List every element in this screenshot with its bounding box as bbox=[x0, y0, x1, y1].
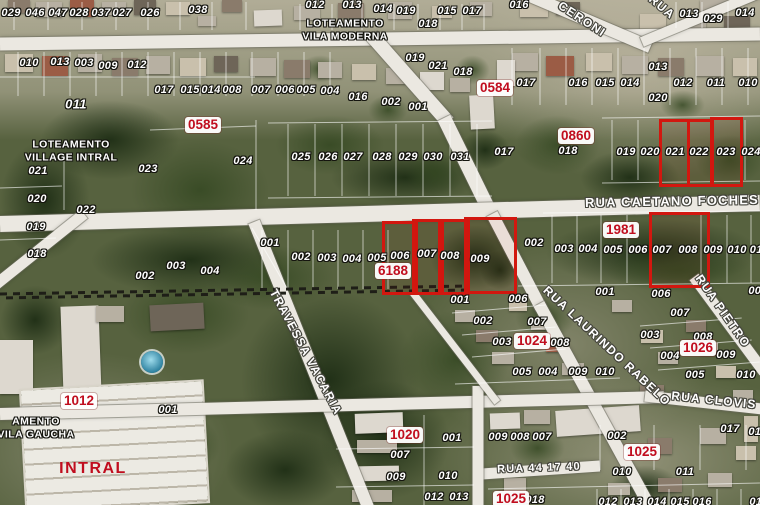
lot-number-label: 006 bbox=[390, 250, 409, 262]
lot-number-label: 013 bbox=[679, 8, 698, 20]
lot-number-label: 016 bbox=[692, 496, 711, 505]
block-id-label: 1012 bbox=[61, 393, 97, 409]
lot-number-label: 012 bbox=[673, 77, 692, 89]
building bbox=[250, 58, 276, 76]
parcel-boundary-line bbox=[717, 489, 718, 505]
lot-number-label: 024 bbox=[741, 146, 760, 158]
lot-number-label: 002 bbox=[381, 96, 400, 108]
parcel-boundary-line bbox=[394, 4, 395, 30]
lot-number-label: 006 bbox=[628, 244, 647, 256]
lot-number-label: 021 bbox=[428, 60, 447, 72]
lot-number-label: 023 bbox=[716, 146, 735, 158]
lot-number-label: 007 bbox=[390, 449, 409, 461]
building bbox=[512, 53, 538, 71]
lot-number-label: 018 bbox=[558, 145, 577, 157]
lot-number-label: 010 bbox=[612, 466, 631, 478]
lot-number-label: 013 bbox=[648, 61, 667, 73]
lot-number-label: 008 bbox=[678, 244, 697, 256]
parcel-boundary-line bbox=[540, 48, 541, 105]
lot-number-label: 007 bbox=[251, 84, 270, 96]
lot-number-label: 005 bbox=[512, 366, 531, 378]
parcel-boundary-line bbox=[552, 215, 553, 283]
parcel-boundary-line bbox=[566, 48, 567, 105]
subdivision-name-label: LOTEAMENTO VILA MODERNA bbox=[302, 17, 388, 42]
lot-number-label: 026 bbox=[318, 151, 337, 163]
lot-number-label: 003 bbox=[166, 260, 185, 272]
lot-number-label: 011 bbox=[750, 244, 760, 256]
block-id-label: 1025 bbox=[624, 444, 660, 460]
lot-number-label: 002 bbox=[291, 251, 310, 263]
parcel-boundary-line bbox=[577, 215, 578, 283]
lot-number-label: 022 bbox=[76, 204, 95, 216]
lot-number-label: 029 bbox=[1, 7, 20, 19]
parcel-boundary-line bbox=[696, 48, 697, 105]
block-id-label: 1024 bbox=[514, 333, 550, 349]
lot-number-label: 030 bbox=[423, 151, 442, 163]
lot-number-label: 002 bbox=[524, 237, 543, 249]
parcel-boundary-line bbox=[746, 425, 747, 470]
lot-number-label: 017 bbox=[154, 84, 173, 96]
parcel-boundary-line bbox=[484, 4, 485, 30]
lot-number-label: 007 bbox=[417, 248, 436, 260]
lot-number-label: 002 bbox=[135, 270, 154, 282]
lot-number-label: 019 bbox=[405, 52, 424, 64]
swimming-pool bbox=[141, 351, 163, 373]
parcel-boundary-line bbox=[612, 120, 613, 180]
parcel-boundary-line bbox=[592, 48, 593, 105]
parcel-boundary-line bbox=[212, 2, 213, 30]
building bbox=[708, 473, 732, 487]
lot-number-label: 004 bbox=[342, 253, 361, 265]
lot-number-label: 028 bbox=[372, 151, 391, 163]
lot-number-label: 009 bbox=[568, 366, 587, 378]
lot-number-label: 003 bbox=[317, 252, 336, 264]
building bbox=[284, 60, 310, 78]
building bbox=[146, 56, 170, 74]
building bbox=[96, 306, 124, 322]
lot-number-label: 014 bbox=[647, 496, 666, 505]
lot-number-label: 026 bbox=[140, 7, 159, 19]
parcel-boundary-line bbox=[338, 230, 339, 289]
parcel-boundary-line bbox=[122, 52, 123, 96]
parcel-boundary-line bbox=[256, 120, 257, 210]
building bbox=[612, 300, 632, 312]
lot-number-label: 019 bbox=[26, 221, 45, 233]
parcel-boundary-line bbox=[702, 2, 703, 28]
block-id-label: 1026 bbox=[680, 340, 716, 356]
parcel-boundary-line bbox=[64, 156, 65, 210]
lot-number-label: 027 bbox=[343, 151, 362, 163]
lot-number-label: 020 bbox=[648, 92, 667, 104]
parcel-boundary-line bbox=[512, 48, 513, 105]
street-name-label: RUA CAETANO FOCHES bbox=[585, 192, 759, 210]
lot-number-label: 009 bbox=[703, 244, 722, 256]
parcel-boundary-line bbox=[597, 489, 598, 505]
parcel-boundary-line bbox=[600, 425, 601, 470]
lot-number-label: 027 bbox=[112, 7, 131, 19]
lot-number-label: 029 bbox=[703, 13, 722, 25]
lot-number-label: 015 bbox=[180, 84, 199, 96]
block-id-label: 6188 bbox=[375, 263, 411, 279]
building bbox=[198, 16, 216, 26]
building bbox=[733, 58, 757, 76]
factory-building bbox=[21, 381, 208, 505]
lot-number-label: 004 bbox=[320, 85, 339, 97]
building bbox=[696, 56, 724, 76]
lot-number-label: 010 bbox=[738, 77, 757, 89]
lot-number-label: 007 bbox=[652, 244, 671, 256]
building bbox=[149, 303, 204, 332]
parcel-boundary-line bbox=[200, 52, 201, 96]
lot-number-label: 015 bbox=[595, 77, 614, 89]
lot-number-label: 019 bbox=[396, 5, 415, 17]
lot-number-label: 012 bbox=[424, 491, 443, 503]
lot-number-label: 006 bbox=[651, 288, 670, 300]
subdivision-name-label: AMENTO VILA GAUCHA bbox=[0, 415, 74, 440]
parcel-boundary-line bbox=[363, 230, 364, 289]
lot-number-label: 007 bbox=[670, 307, 689, 319]
building bbox=[254, 10, 283, 27]
lot-number-label: 014 bbox=[373, 3, 392, 15]
parcel-boundary-line bbox=[669, 489, 670, 505]
parcel-boundary-line bbox=[700, 425, 701, 470]
lot-number-label: 009 bbox=[470, 253, 489, 265]
parcel-boundary-line bbox=[644, 48, 645, 105]
parcel-boundary-line bbox=[44, 52, 45, 96]
building bbox=[352, 64, 376, 80]
lot-number-label: 015 bbox=[437, 5, 456, 17]
parcel-boundary-line bbox=[670, 48, 671, 105]
lot-number-label: 001 bbox=[260, 237, 279, 249]
lot-number-label: 005 bbox=[603, 244, 622, 256]
lot-number-label: 002 bbox=[607, 430, 626, 442]
lot-number-label: 005 bbox=[685, 369, 704, 381]
lot-number-label: 022 bbox=[689, 146, 708, 158]
lot-number-label: 009 bbox=[98, 60, 117, 72]
tree-patch bbox=[225, 430, 345, 505]
lot-number-label: 003 bbox=[74, 57, 93, 69]
parcel-boundary-line bbox=[638, 120, 639, 180]
lot-number-label: 013 bbox=[449, 491, 468, 503]
lot-number-label: 016 bbox=[568, 77, 587, 89]
lot-number-label: 011 bbox=[707, 77, 725, 89]
lot-number-label: 010 bbox=[595, 366, 614, 378]
lot-number-label: 017 bbox=[494, 146, 513, 158]
factory-name-label: INTRAL bbox=[59, 460, 127, 478]
parcel-boundary-line bbox=[288, 124, 289, 196]
parcel-boundary-line bbox=[96, 52, 97, 96]
lot-number-label: 003 bbox=[492, 336, 511, 348]
lot-number-label: 015 bbox=[670, 496, 689, 505]
lot-number-label: 002 bbox=[473, 315, 492, 327]
road bbox=[473, 386, 484, 505]
lot-number-label: 007 bbox=[532, 431, 551, 443]
lot-number-label: 016 bbox=[509, 0, 528, 11]
building bbox=[450, 78, 470, 92]
lot-number-label: 017 bbox=[462, 5, 481, 17]
lot-number-label: 017 bbox=[720, 423, 739, 435]
lot-number-label: 010 bbox=[727, 244, 746, 256]
block-id-label: 1025 bbox=[493, 491, 529, 505]
lot-number-label: 021 bbox=[28, 165, 47, 177]
lot-number-label: 018 bbox=[453, 66, 472, 78]
building bbox=[166, 2, 190, 15]
lot-number-label: 019 bbox=[616, 146, 635, 158]
lot-number-label: 005 bbox=[296, 84, 315, 96]
lot-number-label: 016 bbox=[348, 91, 367, 103]
lot-number-label: 011 bbox=[676, 466, 694, 478]
lot-number-label: 018 bbox=[418, 18, 437, 30]
block-id-label: 0860 bbox=[558, 128, 594, 144]
lot-number-label: 014 bbox=[735, 7, 754, 19]
parcel-boundary-line bbox=[288, 230, 289, 289]
lot-number-label: 013 bbox=[342, 0, 361, 11]
lot-number-label: 031 bbox=[450, 151, 469, 163]
lot-number-label: 011 bbox=[65, 97, 87, 112]
parcel-boundary-line bbox=[601, 215, 602, 283]
lot-number-label: 037 bbox=[91, 7, 110, 19]
lot-number-label: 001 bbox=[595, 286, 614, 298]
block-id-label: 0585 bbox=[185, 117, 221, 133]
lot-number-label: 001 bbox=[442, 432, 461, 444]
lot-number-label: 017 bbox=[749, 496, 760, 505]
lot-number-label: 017 bbox=[516, 77, 535, 89]
parcel-boundary-line bbox=[18, 52, 19, 96]
lot-number-label: 003 bbox=[640, 329, 659, 341]
lot-number-label: 004 bbox=[200, 265, 219, 277]
block-id-label: 1981 bbox=[603, 222, 639, 238]
parcel-boundary-line bbox=[741, 489, 742, 505]
parcel-boundary-line bbox=[315, 124, 316, 196]
lot-number-label: 013 bbox=[623, 496, 642, 505]
lot-number-label: 013 bbox=[50, 56, 69, 68]
lot-number-label: 007 bbox=[527, 316, 546, 328]
lot-number-label: 020 bbox=[27, 193, 46, 205]
lot-number-label: 012 bbox=[305, 0, 324, 11]
lot-number-label: 023 bbox=[138, 163, 157, 175]
lot-number-label: 016 bbox=[748, 426, 760, 438]
lot-number-label: 009 bbox=[716, 349, 735, 361]
parcel-boundary-line bbox=[70, 52, 71, 96]
lot-number-label: 007 bbox=[748, 285, 760, 297]
building bbox=[524, 410, 550, 424]
lot-number-label: 001 bbox=[450, 294, 469, 306]
parcel-boundary-line bbox=[300, 4, 301, 30]
lot-number-label: 010 bbox=[736, 369, 755, 381]
building bbox=[586, 53, 612, 71]
block-id-label: 0584 bbox=[477, 80, 513, 96]
block-id-label: 1020 bbox=[387, 427, 423, 443]
lot-number-label: 021 bbox=[665, 146, 684, 158]
lot-number-label: 001 bbox=[158, 404, 177, 416]
parcel-boundary-line bbox=[246, 2, 247, 30]
lot-number-label: 004 bbox=[578, 243, 597, 255]
lot-number-label: 004 bbox=[660, 350, 679, 362]
subdivision-name-label: LOTEAMENTO VILLAGE INTRAL bbox=[25, 138, 118, 163]
parcel-boundary-line bbox=[342, 124, 343, 196]
parcel-boundary-line bbox=[621, 489, 622, 505]
lot-number-label: 038 bbox=[188, 4, 207, 16]
parcel-boundary-line bbox=[148, 52, 149, 96]
parcel-boundary-line bbox=[645, 489, 646, 505]
building bbox=[716, 366, 736, 378]
lot-number-label: 009 bbox=[386, 471, 405, 483]
parcel-boundary-line bbox=[180, 2, 181, 30]
lot-number-label: 004 bbox=[538, 366, 557, 378]
lot-number-label: 009 bbox=[488, 431, 507, 443]
building bbox=[504, 478, 526, 492]
lot-number-label: 047 bbox=[48, 7, 67, 19]
lot-number-label: 010 bbox=[438, 470, 457, 482]
lot-number-label: 006 bbox=[508, 293, 527, 305]
lot-number-label: 010 bbox=[19, 57, 38, 69]
parcel-boundary-line bbox=[313, 230, 314, 289]
building bbox=[222, 0, 242, 12]
building bbox=[469, 94, 495, 129]
building bbox=[546, 56, 574, 76]
lot-number-label: 014 bbox=[201, 84, 220, 96]
parcel-boundary-line bbox=[369, 124, 370, 196]
lot-number-label: 046 bbox=[25, 7, 44, 19]
lot-number-label: 006 bbox=[275, 84, 294, 96]
lot-number-label: 012 bbox=[598, 496, 617, 505]
lot-number-label: 008 bbox=[222, 84, 241, 96]
building bbox=[180, 58, 206, 76]
parcel-boundary-line bbox=[0, 77, 255, 78]
parcel-boundary-line bbox=[728, 2, 729, 28]
lot-number-label: 014 bbox=[620, 77, 639, 89]
lot-number-label: 020 bbox=[640, 146, 659, 158]
parcel-boundary-line bbox=[477, 124, 478, 196]
parcel-boundary-line bbox=[618, 48, 619, 105]
lot-number-label: 025 bbox=[291, 151, 310, 163]
lot-number-label: 012 bbox=[127, 59, 146, 71]
lot-number-label: 003 bbox=[554, 243, 573, 255]
parcel-boundary-line bbox=[396, 124, 397, 196]
lot-number-label: 008 bbox=[440, 250, 459, 262]
lot-number-label: 018 bbox=[27, 248, 46, 260]
building bbox=[490, 412, 521, 429]
lot-number-label: 001 bbox=[408, 101, 427, 113]
lot-number-label: 008 bbox=[510, 431, 529, 443]
lot-number-label: 028 bbox=[69, 7, 88, 19]
parcel-boundary-line bbox=[676, 2, 677, 28]
satellite-cadastral-map: 0290460470280370270260380120130140190150… bbox=[0, 0, 760, 505]
parcel-boundary-line bbox=[174, 52, 175, 96]
lot-number-label: 029 bbox=[398, 151, 417, 163]
lot-number-label: 024 bbox=[233, 155, 252, 167]
building bbox=[0, 340, 33, 394]
lot-number-label: 008 bbox=[550, 337, 569, 349]
